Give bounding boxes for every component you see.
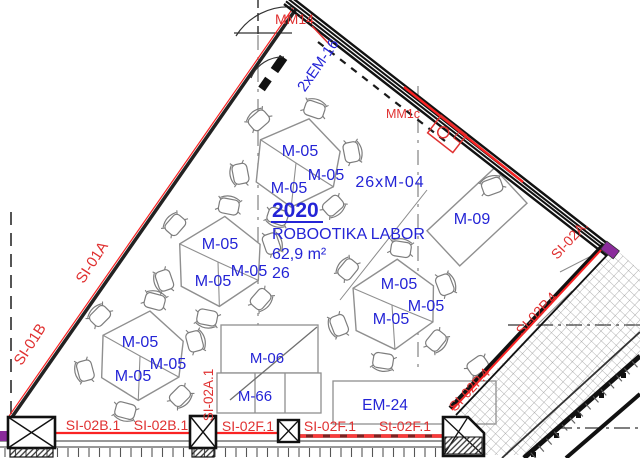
- room-name: ROBOOTIKA LABOR: [272, 226, 425, 243]
- door-jamb-blocks: [258, 55, 287, 91]
- cabinet-bottom-label: M-66: [238, 388, 272, 405]
- equipment-rail-label: EM-24: [362, 397, 408, 414]
- table-label: M-05: [115, 368, 152, 385]
- wall-tag-south-f2: SI-02F.1: [304, 418, 356, 434]
- red-line-ne: [404, 87, 523, 182]
- table-label: M-05: [282, 143, 319, 160]
- device-right-tag: MM1c: [386, 107, 420, 121]
- wall-tag-south-f3: St-02F.1: [379, 418, 431, 434]
- floor-plan-drawing: 2020 ROBOOTIKA LABOR 62,9 m² 26 M-05 M-0…: [0, 0, 640, 458]
- column-a: [8, 417, 55, 457]
- room-occupancy: 26: [272, 265, 290, 282]
- table-label: M-05: [381, 276, 418, 293]
- chair-count-label: 26xM-04: [355, 174, 424, 191]
- table-label: M-05: [195, 273, 232, 290]
- wall-east-label: 2xEM-16: [294, 36, 342, 95]
- table-group-south: [63, 278, 217, 435]
- wall-tag-south-vert: SI-02A.1: [201, 369, 216, 422]
- hatch-band-fill: [455, 248, 640, 455]
- wall-tag-south-f1: SI-02F.1: [222, 418, 274, 434]
- table-label: M-05: [150, 356, 187, 373]
- south-wall-ticks: [0, 448, 462, 457]
- wall-tag-nw-lower: SI-01B: [11, 321, 50, 369]
- table-label: M-05: [373, 311, 410, 328]
- wall-ne-stitch: [318, 42, 445, 141]
- wall-tag-south-b1: SI-02B.1: [66, 417, 121, 433]
- wall-tag-south-b2: SI-02B.1: [134, 417, 189, 433]
- table-label: M-05: [308, 167, 345, 184]
- purple-mark-left: [0, 431, 7, 441]
- room-area: 62,9 m²: [272, 246, 327, 263]
- teacher-desk-label: M-09: [454, 211, 491, 228]
- floor-plan-viewport: 2020 ROBOOTIKA LABOR 62,9 m² 26 M-05 M-0…: [0, 0, 640, 458]
- table-label: M-05: [408, 298, 445, 315]
- room-number: 2020: [272, 199, 319, 222]
- table-label: M-05: [202, 236, 239, 253]
- wall-south: [0, 431, 470, 457]
- column-c: [278, 420, 299, 442]
- table-label: M-05: [122, 334, 159, 351]
- cabinet-top-label: M-06: [250, 350, 284, 367]
- table-label: M-05: [231, 263, 268, 280]
- table-label: M-05: [271, 180, 308, 197]
- door-top-tag: MM14: [275, 11, 314, 27]
